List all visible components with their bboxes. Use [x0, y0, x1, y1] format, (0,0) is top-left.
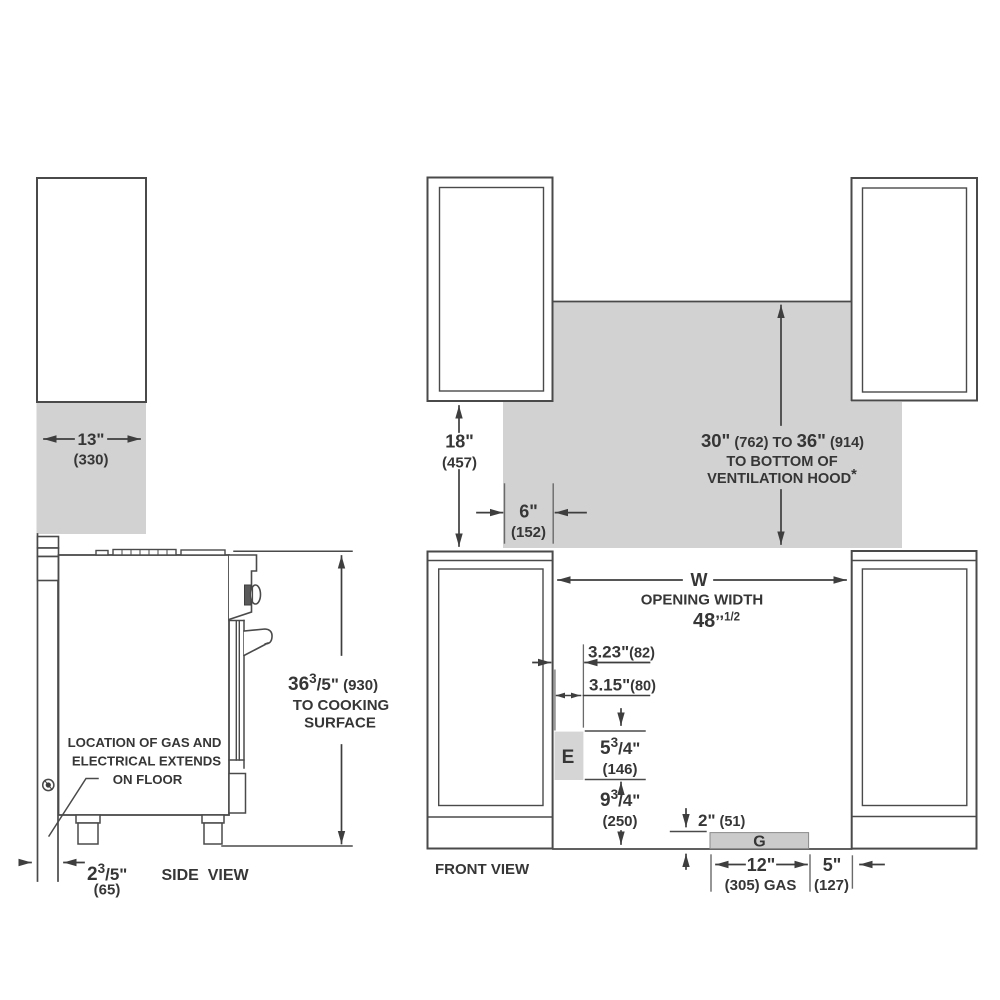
svg-text:18": 18": [445, 432, 474, 452]
svg-text:(65): (65): [94, 882, 121, 899]
svg-text:(305) GAS: (305) GAS: [725, 877, 797, 894]
svg-text:53/4": 53/4": [600, 735, 640, 759]
svg-text:FRONT VIEW: FRONT VIEW: [435, 861, 530, 878]
svg-text:ON FLOOR: ON FLOOR: [113, 772, 183, 787]
svg-text:12": 12": [747, 855, 776, 875]
svg-text:TO BOTTOM OF: TO BOTTOM OF: [726, 454, 837, 470]
svg-text:G: G: [753, 834, 765, 851]
svg-text:TO COOKING: TO COOKING: [293, 697, 389, 714]
svg-text:(250): (250): [602, 813, 637, 830]
svg-text:ELECTRICAL EXTENDS: ELECTRICAL EXTENDS: [72, 754, 221, 769]
svg-text:(152): (152): [511, 524, 546, 541]
svg-text:2" (51): 2" (51): [698, 811, 746, 830]
svg-text:OPENING WIDTH: OPENING WIDTH: [641, 592, 764, 609]
svg-text:48’’1/2: 48’’1/2: [693, 610, 740, 632]
svg-text:(330): (330): [73, 452, 108, 469]
svg-text:LOCATION OF GAS AND: LOCATION OF GAS AND: [68, 735, 222, 750]
svg-text:6": 6": [519, 502, 538, 522]
svg-text:(146): (146): [602, 761, 637, 778]
svg-text:E: E: [562, 747, 575, 768]
svg-text:(457): (457): [442, 455, 477, 472]
svg-text:3.23"(82): 3.23"(82): [588, 643, 655, 662]
svg-text:SURFACE: SURFACE: [304, 715, 376, 732]
svg-text:5": 5": [823, 855, 842, 875]
svg-text:363/5" (930): 363/5" (930): [288, 671, 378, 695]
svg-text:W: W: [691, 570, 708, 590]
svg-text:SIDE VIEW: SIDE VIEW: [162, 867, 250, 884]
svg-text:13": 13": [78, 430, 105, 449]
svg-text:93/4": 93/4": [600, 787, 640, 811]
svg-text:(127): (127): [814, 877, 849, 894]
svg-text:3.15"(80): 3.15"(80): [589, 676, 656, 695]
